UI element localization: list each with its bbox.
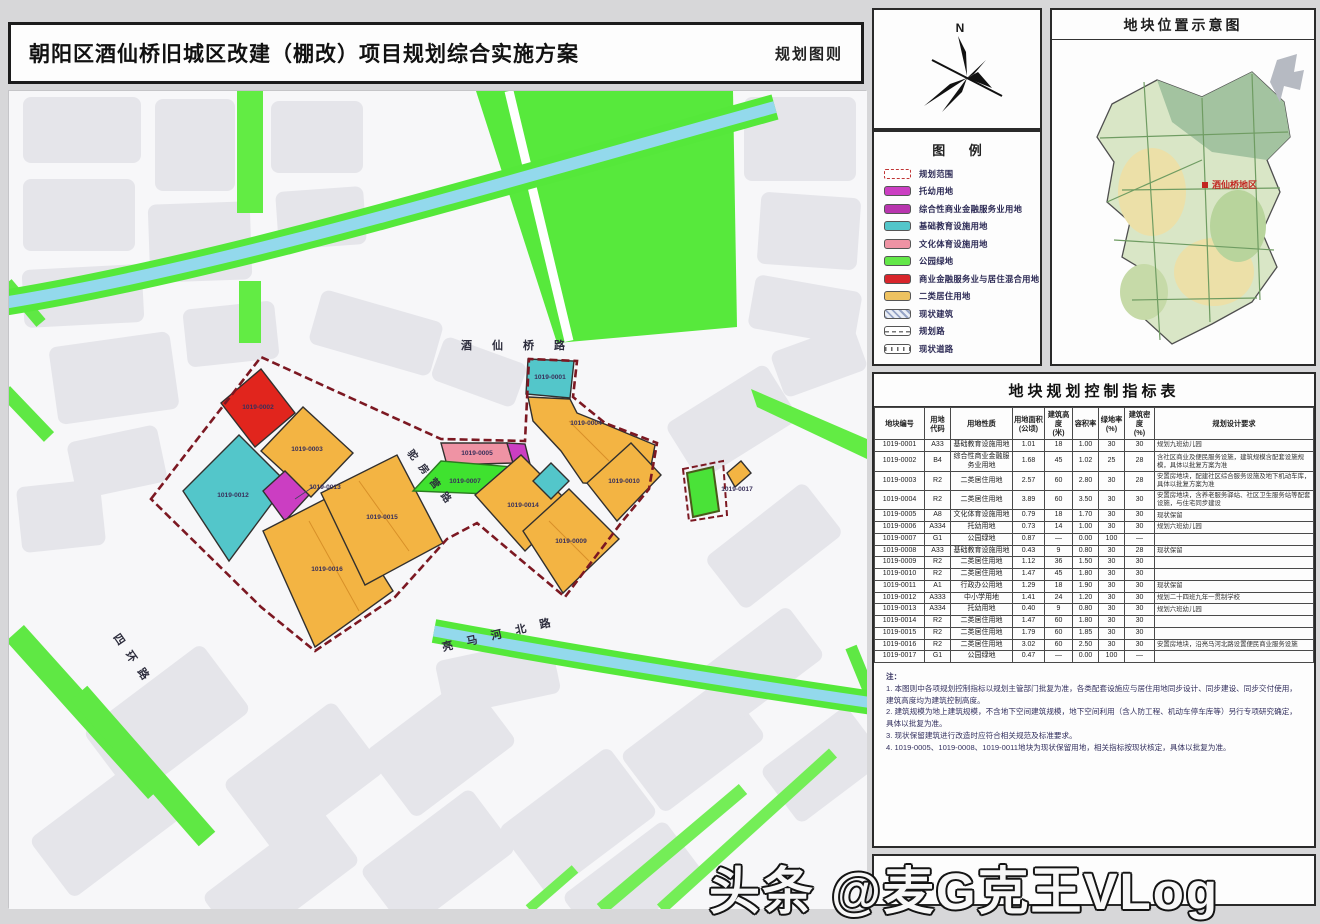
table-cell: 30: [1125, 627, 1155, 639]
table-cell: 1019-0009: [875, 557, 925, 569]
legend-title: 图 例: [892, 140, 1032, 159]
table-cell: 1019-0012: [875, 592, 925, 604]
table-cell: [1155, 557, 1314, 569]
table-cell: 二类居住用地: [951, 491, 1013, 510]
table-cell: 30: [1125, 510, 1155, 522]
table-cell: 1.80: [1073, 569, 1099, 581]
table-cell: 9: [1045, 604, 1073, 616]
table-cell: 基础教育设施用地: [951, 440, 1013, 452]
notes: 注： 1. 本图则中各项规划控制指标以规划主管部门批复为准，各类配套设施应与居住…: [874, 663, 1314, 753]
note-line: 3. 现状保留建筑进行改造时应符合相关规范及标准要求。: [886, 730, 1304, 742]
table-cell: 0.00: [1073, 533, 1099, 545]
table-row: 1019-0002B4综合性商业金融服务业用地1.68451.022528含社区…: [875, 451, 1314, 472]
table-cell: 1019-0017: [875, 651, 925, 663]
parcel-label: 1019-0009: [555, 538, 587, 545]
legend-item: 托幼用地: [884, 183, 1032, 201]
legend-item-label: 托幼用地: [919, 185, 953, 197]
table-row: 1019-0017G1公园绿地0.47—0.00100—: [875, 651, 1314, 663]
legend-item: 公园绿地: [884, 253, 1032, 271]
legend-item: 现状建筑: [884, 305, 1032, 323]
table-cell: 30: [1125, 639, 1155, 651]
legend-item: 规划路: [884, 323, 1032, 341]
notes-list: 1. 本图则中各项规划控制指标以规划主管部门批复为准，各类配套设施应与居住用地同…: [886, 683, 1304, 754]
table-cell: 30: [1099, 545, 1125, 557]
table-cell: 综合性商业金融服务业用地: [951, 451, 1013, 472]
table-row: 1019-0008A33基础教育设施用地0.4390.803028现状保留: [875, 545, 1314, 557]
table-cell: 现状保留: [1155, 510, 1314, 522]
parcel-label: 1019-0014: [507, 502, 539, 509]
table-cell: 45: [1045, 569, 1073, 581]
project-location-marker: [1202, 182, 1208, 188]
table-cell: 100: [1099, 651, 1125, 663]
table-row: 1019-0010R2二类居住用地1.47451.803030: [875, 569, 1314, 581]
table-cell: 18: [1045, 440, 1073, 452]
table-cell: R2: [925, 616, 951, 628]
legend-swatch-fill: [884, 274, 911, 284]
legend-item: 基础教育设施用地: [884, 218, 1032, 236]
table-cell: 1.85: [1073, 627, 1099, 639]
table-cell: 30: [1099, 491, 1125, 510]
table-cell: A333: [925, 592, 951, 604]
legend-items: 规划范围托幼用地综合性商业金融服务业用地基础教育设施用地文化体育设施用地公园绿地…: [884, 165, 1032, 358]
table-cell: 1.12: [1013, 557, 1045, 569]
table-cell: 30: [1099, 472, 1125, 491]
table-cell: 安置房地块，含养老服务驿站、社区卫生服务站等配套设施，与住宅同步建设: [1155, 491, 1314, 510]
table-cell: 2.80: [1073, 472, 1099, 491]
table-row: 1019-0009R2二类居住用地1.12361.503030: [875, 557, 1314, 569]
table-row: 1019-0006A334托幼用地0.73141.003030规划六班幼儿园: [875, 522, 1314, 534]
table-cell: 30: [1099, 616, 1125, 628]
table-cell: 18: [1045, 580, 1073, 592]
index-table-title: 地块规划控制指标表: [874, 374, 1314, 407]
index-table: 地块编号用地 代码用地性质用地面积 (公顷)建筑高度 (米)容积率绿地率 (%)…: [874, 407, 1314, 663]
table-cell: A334: [925, 522, 951, 534]
table-cell: 现状保留: [1155, 545, 1314, 557]
table-cell: 30: [1125, 440, 1155, 452]
table-cell: 30: [1099, 639, 1125, 651]
table-cell: 1019-0005: [875, 510, 925, 522]
table-cell: 30: [1099, 440, 1125, 452]
table-cell: 2.50: [1073, 639, 1099, 651]
note-line: 2. 建筑规模为地上建筑规模，不含地下空间建筑规模，地下空间利用（含人防工程、机…: [886, 706, 1304, 730]
note-line: 1. 本图则中各项规划控制指标以规划主管部门批复为准，各类配套设施应与居住用地同…: [886, 683, 1304, 707]
table-cell: 二类居住用地: [951, 616, 1013, 628]
parcel-label: 1019-0016: [311, 566, 343, 573]
table-cell: 0.87: [1013, 533, 1045, 545]
table-cell: 规划六班幼儿园: [1155, 522, 1314, 534]
table-cell: [1155, 627, 1314, 639]
table-cell: 0.40: [1013, 604, 1045, 616]
table-row: 1019-0007G1公园绿地0.87—0.00100—: [875, 533, 1314, 545]
table-cell: A8: [925, 510, 951, 522]
column-header: 绿地率 (%): [1099, 408, 1125, 440]
legend-item: 规划范围: [884, 165, 1032, 183]
table-cell: 2.57: [1013, 472, 1045, 491]
table-row: 1019-0001A33基础教育设施用地1.01181.003030规划九班幼儿…: [875, 440, 1314, 452]
table-cell: [1155, 616, 1314, 628]
table-cell: 28: [1125, 472, 1155, 491]
table-cell: 60: [1045, 627, 1073, 639]
table-cell: 1.20: [1073, 592, 1099, 604]
table-cell: 14: [1045, 522, 1073, 534]
legend-item-label: 规划范围: [919, 168, 953, 180]
table-row: 1019-0013A334托幼用地0.4090.803030规划六班幼儿园: [875, 604, 1314, 616]
table-cell: 1.29: [1013, 580, 1045, 592]
table-cell: 100: [1099, 533, 1125, 545]
table-cell: R2: [925, 627, 951, 639]
table-cell: 1019-0010: [875, 569, 925, 581]
table-cell: R2: [925, 472, 951, 491]
table-cell: 1.80: [1073, 616, 1099, 628]
table-cell: 30: [1125, 557, 1155, 569]
table-cell: [1155, 533, 1314, 545]
table-cell: 1019-0016: [875, 639, 925, 651]
north-arrow-panel: N: [872, 8, 1042, 130]
sheet-type-label: 规划图则: [775, 43, 843, 64]
location-inset-map: 酒仙桥地区: [1052, 40, 1314, 364]
table-cell: 1.47: [1013, 569, 1045, 581]
parcel-label: 1019-0017: [721, 486, 753, 493]
table-cell: 托幼用地: [951, 522, 1013, 534]
district-patch: [1120, 264, 1168, 320]
green-strip: [237, 91, 263, 213]
table-cell: 托幼用地: [951, 604, 1013, 616]
legend-item-label: 公园绿地: [919, 255, 953, 267]
table-cell: —: [1125, 651, 1155, 663]
table-cell: 60: [1045, 639, 1073, 651]
notes-heading: 注：: [886, 672, 901, 681]
table-cell: 28: [1125, 545, 1155, 557]
legend-item: 综合性商业金融服务业用地: [884, 200, 1032, 218]
road-label: 酒仙桥路: [461, 338, 585, 352]
legend-item-label: 规划路: [919, 325, 945, 337]
table-cell: 0.80: [1073, 604, 1099, 616]
table-cell: 0.79: [1013, 510, 1045, 522]
legend: 图 例 规划范围托幼用地综合性商业金融服务业用地基础教育设施用地文化体育设施用地…: [872, 130, 1042, 366]
table-cell: 1.68: [1013, 451, 1045, 472]
column-header: 用地 代码: [925, 408, 951, 440]
column-header: 地块编号: [875, 408, 925, 440]
green-strip: [239, 281, 261, 343]
table-cell: 公园绿地: [951, 651, 1013, 663]
parcel-label: 1019-0003: [291, 446, 323, 453]
location-inset-panel: 地块位置示意图 酒仙桥地区: [1050, 8, 1316, 366]
table-cell: A1: [925, 580, 951, 592]
table-cell: 3.89: [1013, 491, 1045, 510]
legend-item-label: 综合性商业金融服务业用地: [919, 203, 1022, 215]
table-cell: 1019-0015: [875, 627, 925, 639]
legend-item-label: 现状道路: [919, 343, 953, 355]
table-cell: 30: [1125, 522, 1155, 534]
table-cell: 安置房地块，配建社区综合服务设施及地下机动车库，具体以批复方案为准: [1155, 472, 1314, 491]
table-cell: 1019-0001: [875, 440, 925, 452]
table-cell: 二类居住用地: [951, 639, 1013, 651]
legend-item: 二类居住用地: [884, 288, 1032, 306]
table-cell: 安置房地块，沿亮马河北路设置便民商业服务设施: [1155, 639, 1314, 651]
table-cell: R2: [925, 639, 951, 651]
table-cell: 二类居住用地: [951, 627, 1013, 639]
legend-swatch-hatch: [884, 309, 911, 319]
legend-swatch-road-existing: [884, 344, 911, 354]
table-cell: 规划二十四班九年一贯制学校: [1155, 592, 1314, 604]
table-cell: 30: [1099, 569, 1125, 581]
table-cell: 1019-0014: [875, 616, 925, 628]
location-inset-title: 地块位置示意图: [1052, 10, 1314, 40]
table-cell: 公园绿地: [951, 533, 1013, 545]
table-cell: 规划六班幼儿园: [1155, 604, 1314, 616]
table-cell: 30: [1099, 604, 1125, 616]
watermark: 头条 @麦G克王VLog: [608, 850, 1320, 924]
table-cell: 基础教育设施用地: [951, 545, 1013, 557]
table-cell: 45: [1045, 451, 1073, 472]
legend-item-label: 现状建筑: [919, 308, 953, 320]
table-cell: —: [1125, 533, 1155, 545]
table-cell: 28: [1125, 451, 1155, 472]
column-header: 容积率: [1073, 408, 1099, 440]
table-cell: 30: [1125, 580, 1155, 592]
column-header: 用地性质: [951, 408, 1013, 440]
table-cell: 1.70: [1073, 510, 1099, 522]
table-cell: 30: [1125, 604, 1155, 616]
table-cell: G1: [925, 651, 951, 663]
table-row: 1019-0015R2二类居住用地1.79601.853030: [875, 627, 1314, 639]
legend-item-label: 二类居住用地: [919, 290, 971, 302]
table-cell: 0.47: [1013, 651, 1045, 663]
table-cell: 1019-0006: [875, 522, 925, 534]
table-cell: 1019-0007: [875, 533, 925, 545]
table-cell: A334: [925, 604, 951, 616]
table-cell: 1.00: [1073, 522, 1099, 534]
table-cell: 9: [1045, 545, 1073, 557]
legend-swatch-fill: [884, 204, 911, 214]
table-cell: 0.80: [1073, 545, 1099, 557]
table-cell: 1019-0003: [875, 472, 925, 491]
column-header: 建筑密度 (%): [1125, 408, 1155, 440]
table-cell: 1.47: [1013, 616, 1045, 628]
table-row: 1019-0011A1行政办公用地1.29181.903030现状保留: [875, 580, 1314, 592]
table-cell: 0.00: [1073, 651, 1099, 663]
table-cell: 中小学用地: [951, 592, 1013, 604]
table-cell: 1.79: [1013, 627, 1045, 639]
table-cell: 18: [1045, 510, 1073, 522]
parcel-label: 1019-0001: [534, 374, 566, 381]
legend-item: 商业金融服务业与居住混合用地: [884, 270, 1032, 288]
table-cell: R2: [925, 557, 951, 569]
legend-item: 现状道路: [884, 340, 1032, 358]
table-cell: 0.43: [1013, 545, 1045, 557]
title-bar: 朝阳区酒仙桥旧城区改建（棚改）项目规划综合实施方案 规划图则: [8, 22, 864, 84]
table-cell: 规划九班幼儿园: [1155, 440, 1314, 452]
table-cell: 现状保留: [1155, 580, 1314, 592]
legend-item-label: 基础教育设施用地: [919, 220, 988, 232]
table-cell: [1155, 651, 1314, 663]
table-cell: 1019-0002: [875, 451, 925, 472]
parcel-park-detached: [687, 467, 719, 517]
legend-swatch-fill: [884, 291, 911, 301]
table-row: 1019-0012A333中小学用地1.41241.203030规划二十四班九年…: [875, 592, 1314, 604]
table-cell: 36: [1045, 557, 1073, 569]
legend-item: 文化体育设施用地: [884, 235, 1032, 253]
parcel-label: 1019-0007: [449, 478, 481, 485]
parcel-label: 1019-0005: [461, 450, 493, 457]
legend-swatch-road-planned: [884, 326, 911, 336]
table-cell: 1019-0011: [875, 580, 925, 592]
north-arrow: N: [874, 10, 1040, 128]
table-row: 1019-0005A8文化体育设施用地0.79181.703030现状保留: [875, 510, 1314, 522]
table-cell: 含社区商业及便民服务设施，建筑规模含配套设施规模，具体以批复方案为准: [1155, 451, 1314, 472]
project-location-label: 酒仙桥地区: [1212, 179, 1257, 190]
table-cell: 30: [1099, 580, 1125, 592]
parcel-label: 1019-0002: [242, 404, 274, 411]
table-cell: 1019-0004: [875, 491, 925, 510]
table-row: 1019-0004R2二类居住用地3.89603.503030安置房地块，含养老…: [875, 491, 1314, 510]
plan-map: 1019-00021019-00031019-00121019-00131019…: [8, 90, 866, 908]
legend-swatch-boundary: [884, 169, 911, 179]
parcel-label: 1019-0012: [217, 492, 249, 499]
table-cell: R2: [925, 569, 951, 581]
table-cell: 行政办公用地: [951, 580, 1013, 592]
legend-swatch-fill: [884, 186, 911, 196]
table-cell: 文化体育设施用地: [951, 510, 1013, 522]
parcel-label: 1019-0010: [608, 478, 640, 485]
table-cell: 1.50: [1073, 557, 1099, 569]
column-header: 建筑高度 (米): [1045, 408, 1073, 440]
table-cell: 30: [1125, 592, 1155, 604]
table-cell: 1.41: [1013, 592, 1045, 604]
table-cell: 60: [1045, 491, 1073, 510]
table-cell: 60: [1045, 616, 1073, 628]
legend-item-label: 商业金融服务业与居住混合用地: [919, 273, 1039, 285]
table-cell: 1.02: [1073, 451, 1099, 472]
note-line: 4. 1019-0005、1019-0008、1019-0011地块为现状保留用…: [886, 742, 1304, 754]
table-row: 1019-0016R2二类居住用地3.02602.503030安置房地块，沿亮马…: [875, 639, 1314, 651]
parcel-label: 1019-0015: [366, 514, 398, 521]
table-cell: B4: [925, 451, 951, 472]
north-label: N: [956, 21, 965, 35]
plan-map-canvas: 1019-00021019-00031019-00121019-00131019…: [9, 91, 867, 909]
table-row: 1019-0014R2二类居住用地1.47601.803030: [875, 616, 1314, 628]
table-cell: 1.01: [1013, 440, 1045, 452]
parcel-label: 1019-0013: [309, 484, 341, 491]
table-cell: 30: [1099, 510, 1125, 522]
index-table-header: 地块编号用地 代码用地性质用地面积 (公顷)建筑高度 (米)容积率绿地率 (%)…: [875, 408, 1314, 440]
table-cell: 3.02: [1013, 639, 1045, 651]
legend-item-label: 文化体育设施用地: [919, 238, 988, 250]
table-cell: 30: [1099, 522, 1125, 534]
legend-swatch-fill: [884, 239, 911, 249]
table-cell: A33: [925, 545, 951, 557]
index-table-body: 1019-0001A33基础教育设施用地1.01181.003030规划九班幼儿…: [875, 440, 1314, 663]
table-cell: 30: [1099, 592, 1125, 604]
table-cell: 1.90: [1073, 580, 1099, 592]
table-cell: —: [1045, 533, 1073, 545]
table-cell: 30: [1099, 557, 1125, 569]
table-cell: 0.73: [1013, 522, 1045, 534]
table-cell: 1019-0008: [875, 545, 925, 557]
table-row: 1019-0003R2二类居住用地2.57602.803028安置房地块，配建社…: [875, 472, 1314, 491]
index-table-panel: 地块规划控制指标表 地块编号用地 代码用地性质用地面积 (公顷)建筑高度 (米)…: [872, 372, 1316, 848]
table-cell: 3.50: [1073, 491, 1099, 510]
table-cell: 60: [1045, 472, 1073, 491]
table-cell: 二类居住用地: [951, 557, 1013, 569]
legend-swatch-fill: [884, 256, 911, 266]
column-header: 用地面积 (公顷): [1013, 408, 1045, 440]
table-cell: 30: [1125, 491, 1155, 510]
legend-swatch-fill: [884, 221, 911, 231]
table-cell: 25: [1099, 451, 1125, 472]
table-cell: 1019-0013: [875, 604, 925, 616]
column-header: 规划设计要求: [1155, 408, 1314, 440]
page-title: 朝阳区酒仙桥旧城区改建（棚改）项目规划综合实施方案: [29, 38, 579, 68]
table-cell: 24: [1045, 592, 1073, 604]
table-cell: 1.00: [1073, 440, 1099, 452]
table-cell: [1155, 569, 1314, 581]
table-cell: 30: [1125, 616, 1155, 628]
table-cell: A33: [925, 440, 951, 452]
table-cell: 30: [1099, 627, 1125, 639]
parcel-label: 1019-0004: [570, 420, 602, 427]
table-cell: R2: [925, 491, 951, 510]
table-cell: G1: [925, 533, 951, 545]
table-cell: 二类居住用地: [951, 472, 1013, 491]
table-cell: 二类居住用地: [951, 569, 1013, 581]
table-cell: 30: [1125, 569, 1155, 581]
table-cell: —: [1045, 651, 1073, 663]
